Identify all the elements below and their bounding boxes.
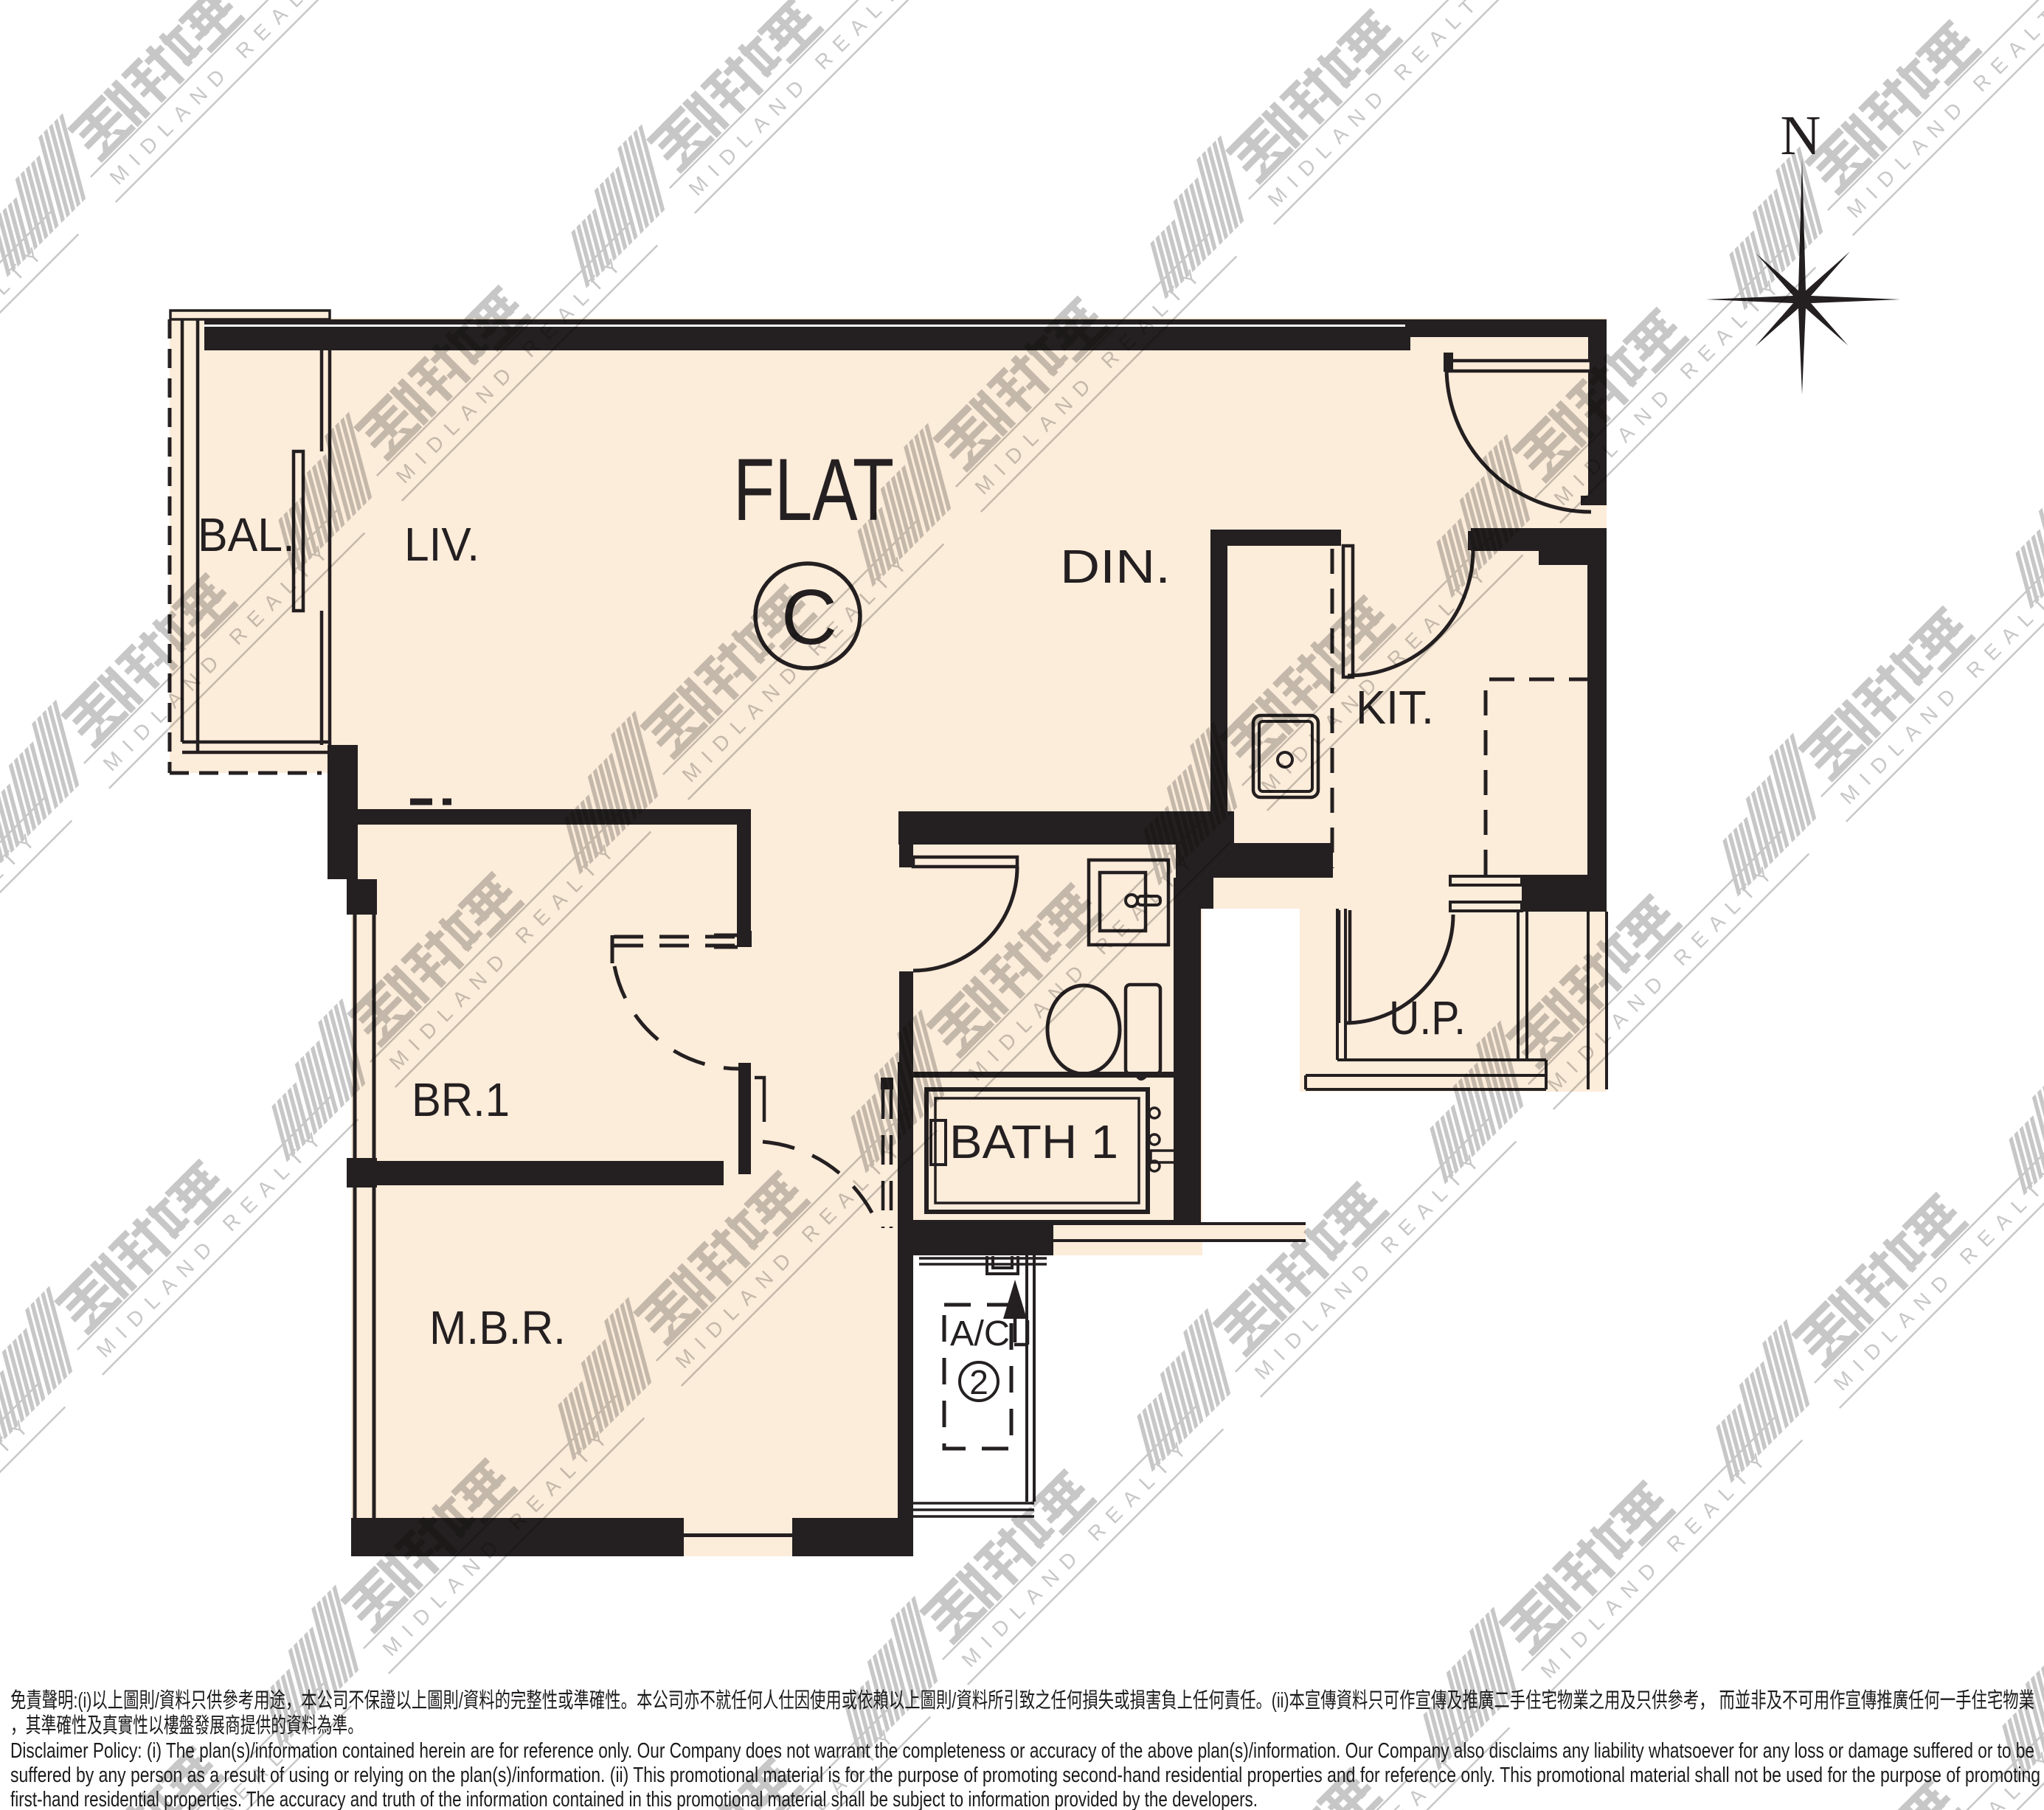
svg-text:BATH 1: BATH 1 [949,1115,1118,1168]
svg-text:M.B.R.: M.B.R. [429,1301,566,1354]
svg-text:BAL.: BAL. [198,508,295,561]
svg-text:BR.1: BR.1 [412,1073,510,1126]
svg-text:Disclaimer Policy: (i) The pla: Disclaimer Policy: (i) The plan(s)/infor… [10,1739,2034,1763]
svg-text:suffered by any person as a re: suffered by any person as a result of us… [10,1764,2040,1787]
svg-text:A/C: A/C [950,1314,1010,1353]
svg-text:first-hand residential propert: first-hand residential properties. The a… [10,1788,1258,1810]
svg-text:，其準確性及真實性以樓盤發展商提供的資料為準。: ，其準確性及真實性以樓盤發展商提供的資料為準。 [10,1713,363,1738]
svg-text:LIV.: LIV. [404,518,479,571]
svg-text:免責聲明:(i)以上圖則/資料只供參考用途，本公司不保證以上: 免責聲明:(i)以上圖則/資料只供參考用途，本公司不保證以上圖則/資料的完整性或… [10,1688,2034,1713]
svg-text:2: 2 [969,1363,988,1401]
svg-text:DIN.: DIN. [1060,540,1171,593]
svg-text:U.P.: U.P. [1389,991,1466,1044]
